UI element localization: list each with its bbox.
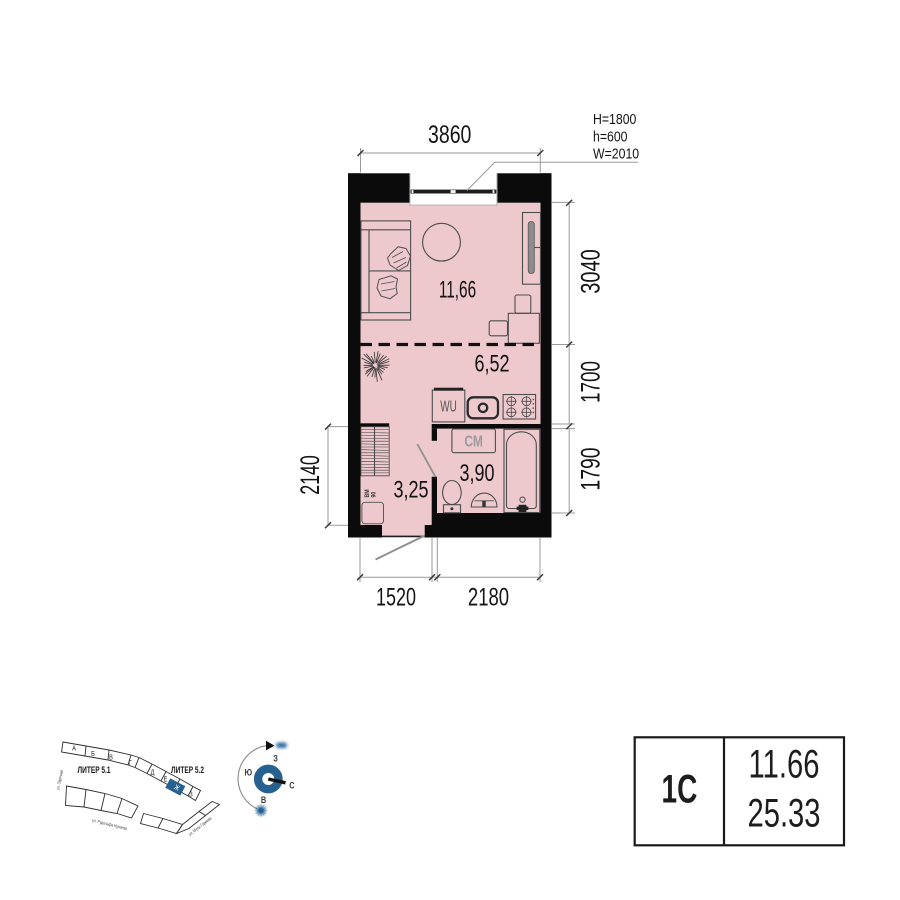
svg-text:Б: Б: [91, 750, 95, 758]
svg-text:1520: 1520: [376, 582, 416, 611]
svg-text:3,90: 3,90: [459, 461, 494, 487]
svg-text:1С: 1С: [662, 768, 698, 812]
svg-text:Г: Г: [128, 759, 131, 767]
svg-text:З: З: [189, 791, 192, 799]
svg-text:С: С: [289, 779, 294, 790]
svg-text:3,25: 3,25: [393, 477, 428, 503]
svg-text:1700: 1700: [575, 361, 605, 403]
svg-text:H=1800: H=1800: [593, 111, 637, 127]
svg-text:3040: 3040: [576, 249, 607, 293]
svg-text:h=600: h=600: [593, 128, 628, 144]
svg-text:Ю: Ю: [244, 767, 252, 778]
svg-text:11.66: 11.66: [749, 742, 820, 787]
svg-text:В: В: [261, 794, 266, 805]
svg-text:WU: WU: [440, 397, 457, 415]
svg-text:2180: 2180: [468, 583, 509, 611]
svg-text:В: В: [109, 754, 113, 762]
svg-text:Е: Е: [164, 776, 168, 784]
svg-text:А: А: [72, 745, 76, 753]
svg-text:3860: 3860: [428, 121, 471, 149]
svg-text:З: З: [273, 753, 278, 764]
svg-text:W=2010: W=2010: [593, 146, 639, 162]
svg-text:ЛИТЕР 5.2: ЛИТЕР 5.2: [171, 765, 205, 775]
svg-text:1790: 1790: [575, 447, 605, 490]
svg-text:11,66: 11,66: [439, 277, 476, 303]
svg-text:2140: 2140: [294, 455, 325, 495]
svg-text:90: 90: [371, 491, 378, 497]
svg-text:ЛИТЕР 5.1: ЛИТЕР 5.1: [78, 765, 112, 775]
svg-text:СМ: СМ: [464, 432, 482, 450]
svg-text:Д: Д: [151, 769, 155, 777]
svg-text:25.33: 25.33: [747, 791, 820, 836]
svg-text:6,52: 6,52: [474, 351, 509, 377]
